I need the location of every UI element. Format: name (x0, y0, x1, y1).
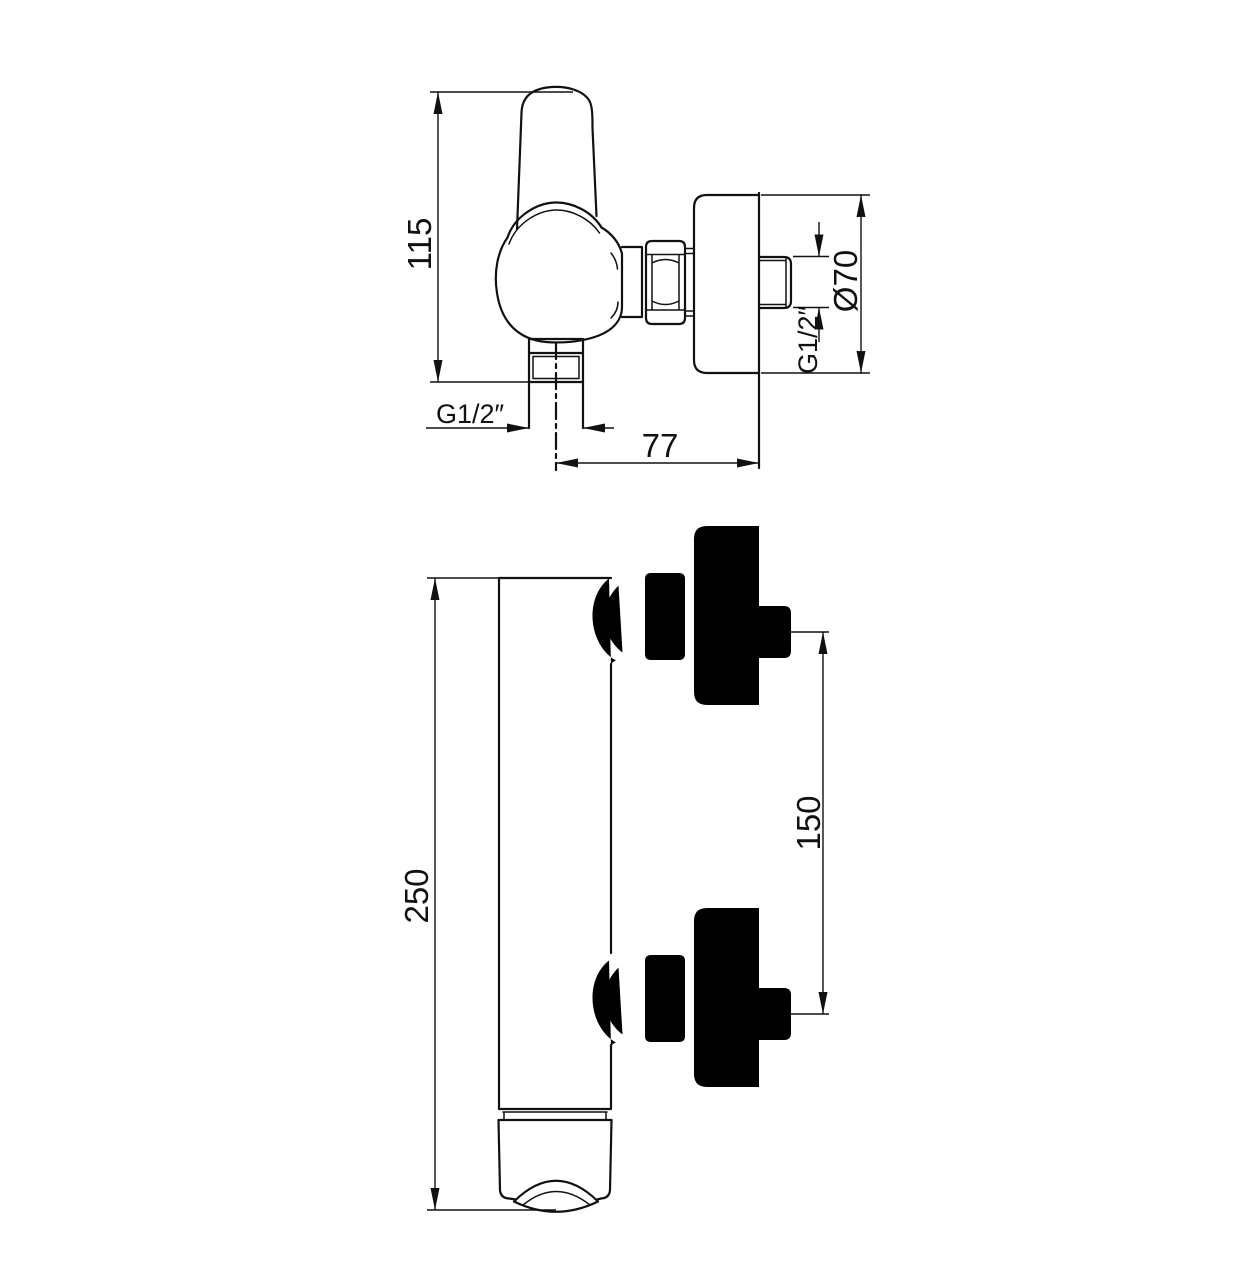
handle (517, 87, 597, 229)
dim-label-d70: Ø70 (827, 250, 864, 312)
upper-connection (593, 526, 792, 705)
lower-connection (593, 908, 792, 1087)
dim-label-115: 115 (401, 218, 438, 271)
dim-label-g12-outlet: G1/2″ (436, 399, 505, 429)
side-washer-lines (685, 249, 694, 317)
body-neck (503, 1112, 607, 1120)
spout-cap (499, 1120, 612, 1200)
side-thread-stub-chamfer (759, 258, 786, 308)
valve-body (496, 228, 622, 343)
valve-body-detail (611, 253, 618, 318)
side-wall-flange (694, 195, 759, 373)
drawing-sheet: 115 G1/2″ 77 G1/2″ (0, 0, 1241, 1274)
dim-label-150: 150 (790, 795, 827, 850)
dim-g12-outlet: G1/2″ (426, 399, 614, 433)
dim-g12-wall: G1/2″ (793, 222, 829, 374)
spout-mouth-inner (523, 1192, 590, 1206)
technical-drawing-canvas: 115 G1/2″ 77 G1/2″ (0, 0, 1241, 1274)
dim-label-g12-wall: G1/2″ (793, 305, 823, 374)
front-view (499, 526, 792, 1212)
body-column (499, 578, 611, 1109)
dim-label-250: 250 (398, 868, 435, 923)
dim-77: 77 (556, 427, 759, 468)
dim-250: 250 (398, 578, 556, 1210)
side-hex-nut-facets (646, 255, 685, 311)
dim-label-77: 77 (642, 427, 679, 464)
side-connector-pipe (622, 247, 642, 317)
dim-150: 150 (790, 632, 829, 1014)
spout-mouth (514, 1181, 598, 1212)
side-view (496, 87, 791, 470)
